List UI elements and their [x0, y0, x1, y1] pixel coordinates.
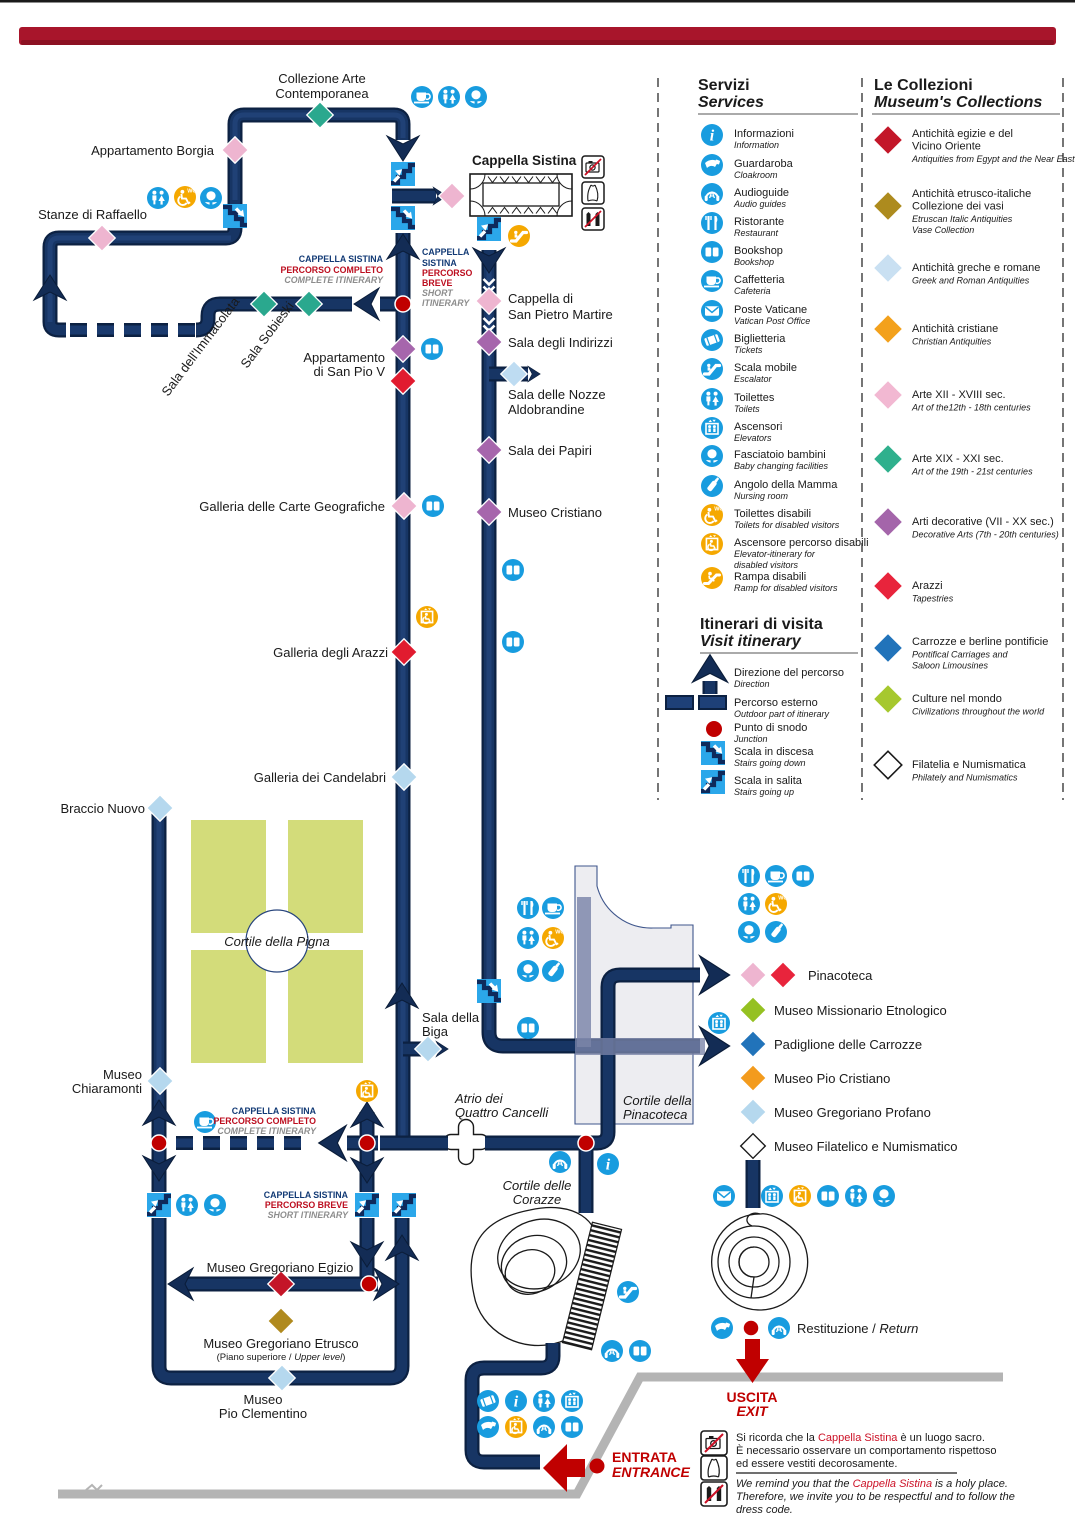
svg-text:Arazzi: Arazzi — [912, 580, 943, 592]
svg-text:Baby changing facilities: Baby changing facilities — [734, 461, 829, 471]
svg-text:SISTINA: SISTINA — [422, 258, 457, 268]
svg-text:Antichità egizie e del: Antichità egizie e del — [912, 128, 1013, 140]
svg-text:Nursing room: Nursing room — [734, 491, 789, 501]
svg-text:Antichità cristiane: Antichità cristiane — [912, 323, 998, 335]
svg-text:Restaurant: Restaurant — [734, 228, 779, 238]
svg-text:Caffetteria: Caffetteria — [734, 274, 785, 286]
svg-text:Culture nel mondo: Culture nel mondo — [912, 693, 1002, 705]
svg-text:Therefore, we invite you to be: Therefore, we invite you to be respectfu… — [736, 1491, 1015, 1503]
svg-text:Informazioni: Informazioni — [734, 128, 794, 140]
svg-text:Aldobrandine: Aldobrandine — [508, 402, 585, 417]
svg-text:Saloon Limousines: Saloon Limousines — [912, 661, 989, 671]
svg-text:Toilettes: Toilettes — [734, 392, 775, 404]
svg-text:Filatelia e Numismatica: Filatelia e Numismatica — [912, 759, 1027, 771]
svg-text:Galleria degli Arazzi: Galleria degli Arazzi — [273, 645, 388, 660]
svg-text:Fasciatoio bambini: Fasciatoio bambini — [734, 449, 826, 461]
svg-text:Museo: Museo — [103, 1067, 142, 1082]
svg-text:Cafeteria: Cafeteria — [734, 286, 771, 296]
svg-text:Antichità etrusco-italiche: Antichità etrusco-italiche — [912, 188, 1031, 200]
svg-text:Escalator: Escalator — [734, 374, 773, 384]
svg-text:Vicino Oriente: Vicino Oriente — [912, 141, 981, 153]
svg-text:Antichità greche e romane: Antichità greche e romane — [912, 262, 1040, 274]
svg-text:Decorative Arts (7th - 20th ce: Decorative Arts (7th - 20th centuries) — [912, 530, 1059, 540]
svg-text:Scala in discesa: Scala in discesa — [734, 746, 814, 758]
svg-text:Museo Cristiano: Museo Cristiano — [508, 505, 602, 520]
svg-text:SHORT ITINERARY: SHORT ITINERARY — [268, 1210, 349, 1220]
svg-text:Arte XII - XVIII sec.: Arte XII - XVIII sec. — [912, 389, 1006, 401]
svg-text:Cortile delle: Cortile delle — [503, 1178, 572, 1193]
svg-text:ed essere vestiti decorosament: ed essere vestiti decorosamente. — [736, 1458, 897, 1470]
svg-text:Outdoor part of itinerary: Outdoor part of itinerary — [734, 709, 830, 719]
svg-text:Vase Collection: Vase Collection — [912, 225, 974, 235]
svg-text:Christian Antiquities: Christian Antiquities — [912, 337, 992, 347]
svg-text:COMPLETE ITINERARY: COMPLETE ITINERARY — [284, 275, 384, 285]
svg-text:Chiaramonti: Chiaramonti — [72, 1081, 142, 1096]
svg-text:Museum's Collections: Museum's Collections — [874, 94, 1042, 111]
svg-text:PERCORSO COMPLETO: PERCORSO COMPLETO — [214, 1116, 317, 1126]
svg-text:Appartamento: Appartamento — [303, 350, 385, 365]
svg-text:Ascensori: Ascensori — [734, 421, 782, 433]
svg-text:È necessario osservare un comp: È necessario osservare un comportamento … — [736, 1444, 996, 1457]
svg-text:Stairs going up: Stairs going up — [734, 787, 794, 797]
svg-text:Stairs going down: Stairs going down — [734, 758, 806, 768]
svg-text:Scala mobile: Scala mobile — [734, 362, 797, 374]
svg-text:Etruscan Italic Antiquities: Etruscan Italic Antiquities — [912, 214, 1013, 224]
svg-text:Galleria delle Carte Geografic: Galleria delle Carte Geografiche — [199, 499, 385, 514]
svg-text:Bookshop: Bookshop — [734, 257, 774, 267]
svg-text:Cloakroom: Cloakroom — [734, 170, 778, 180]
svg-text:Elevators: Elevators — [734, 433, 772, 443]
svg-text:Toilets: Toilets — [734, 404, 760, 414]
svg-text:Poste Vaticane: Poste Vaticane — [734, 304, 807, 316]
svg-text:PERCORSO BREVE: PERCORSO BREVE — [265, 1200, 348, 1210]
svg-text:Museo Missionario Etnologico: Museo Missionario Etnologico — [774, 1003, 947, 1018]
svg-text:Percorso esterno: Percorso esterno — [734, 697, 818, 709]
svg-text:CAPPELLA SISTINA: CAPPELLA SISTINA — [264, 1190, 349, 1200]
svg-text:Arte XIX - XXI sec.: Arte XIX - XXI sec. — [912, 453, 1004, 465]
svg-text:Quattro Cancelli: Quattro Cancelli — [455, 1105, 549, 1120]
svg-text:Braccio Nuovo: Braccio Nuovo — [60, 801, 145, 816]
svg-text:Itinerari di visita: Itinerari di visita — [700, 616, 823, 633]
svg-text:Ascensore percorso disabili: Ascensore percorso disabili — [734, 537, 869, 549]
svg-text:Elevator-itinerary for: Elevator-itinerary for — [734, 549, 816, 559]
svg-text:Tapestries: Tapestries — [912, 594, 954, 604]
svg-text:Biga: Biga — [422, 1024, 449, 1039]
svg-text:Ristorante: Ristorante — [734, 216, 784, 228]
svg-text:PERCORSO COMPLETO: PERCORSO COMPLETO — [281, 265, 384, 275]
svg-text:Direction: Direction — [734, 679, 770, 689]
svg-text:Cappella Sistina: Cappella Sistina — [472, 153, 577, 168]
svg-text:Arti decorative (VII - XX sec.: Arti decorative (VII - XX sec.) — [912, 516, 1054, 528]
svg-text:Services: Services — [698, 94, 764, 111]
svg-text:Collezione Arte: Collezione Arte — [278, 71, 365, 86]
svg-text:Greek and Roman Antiquities: Greek and Roman Antiquities — [912, 276, 1030, 286]
svg-text:Toilettes disabili: Toilettes disabili — [734, 508, 811, 520]
svg-text:Antiquities from Egypt and the: Antiquities from Egypt and the Near East — [911, 154, 1075, 164]
svg-text:Audio guides: Audio guides — [733, 199, 787, 209]
svg-text:Cappella di: Cappella di — [508, 291, 573, 306]
svg-text:Sala della: Sala della — [422, 1010, 480, 1025]
svg-text:ITINERARY: ITINERARY — [422, 298, 470, 308]
svg-text:Museo Filatelico e Numismatico: Museo Filatelico e Numismatico — [774, 1139, 958, 1154]
svg-text:disabled visitors: disabled visitors — [734, 560, 799, 570]
svg-text:Restituzione / Return: Restituzione / Return — [797, 1321, 918, 1336]
svg-text:Stanze di Raffaello: Stanze di Raffaello — [38, 207, 147, 222]
svg-text:Information: Information — [734, 140, 779, 150]
svg-text:Corazze: Corazze — [513, 1192, 561, 1207]
svg-text:Museo Gregoriano Egizio: Museo Gregoriano Egizio — [207, 1260, 354, 1275]
svg-text:Scala in salita: Scala in salita — [734, 775, 803, 787]
svg-text:Visit itinerary: Visit itinerary — [700, 633, 802, 650]
svg-text:Museo Gregoriano Profano: Museo Gregoriano Profano — [774, 1105, 931, 1120]
svg-text:Pontifical Carriages and: Pontifical Carriages and — [912, 650, 1009, 660]
svg-text:Contemporanea: Contemporanea — [275, 86, 369, 101]
svg-text:Atrio dei: Atrio dei — [454, 1091, 504, 1106]
svg-text:BREVE: BREVE — [422, 278, 452, 288]
svg-text:Biglietteria: Biglietteria — [734, 333, 786, 345]
svg-text:Tickets: Tickets — [734, 345, 763, 355]
svg-text:Museo: Museo — [243, 1392, 282, 1407]
svg-text:Collezione dei vasi: Collezione dei vasi — [912, 201, 1004, 213]
svg-text:Rampa disabili: Rampa disabili — [734, 571, 806, 583]
svg-text:Punto di snodo: Punto di snodo — [734, 722, 807, 734]
svg-text:Sala delle Nozze: Sala delle Nozze — [508, 387, 606, 402]
svg-text:Pio Clementino: Pio Clementino — [219, 1406, 307, 1421]
svg-text:Audioguide: Audioguide — [734, 187, 789, 199]
svg-text:Padiglione delle Carrozze: Padiglione delle Carrozze — [774, 1037, 922, 1052]
svg-text:Bookshop: Bookshop — [734, 245, 783, 257]
svg-text:Servizi: Servizi — [698, 77, 750, 94]
svg-text:Galleria dei Candelabri: Galleria dei Candelabri — [254, 770, 386, 785]
svg-text:Direzione del percorso: Direzione del percorso — [734, 667, 844, 679]
svg-text:CAPPELLA SISTINA: CAPPELLA SISTINA — [232, 1106, 317, 1116]
svg-text:Guardaroba: Guardaroba — [734, 158, 794, 170]
svg-text:Appartamento Borgia: Appartamento Borgia — [91, 143, 215, 158]
svg-text:ENTRATA: ENTRATA — [612, 1449, 677, 1465]
svg-text:Sala dei Papiri: Sala dei Papiri — [508, 443, 592, 458]
svg-text:Le Collezioni: Le Collezioni — [874, 77, 973, 94]
svg-text:Pinacoteca: Pinacoteca — [623, 1107, 687, 1122]
svg-text:San Pietro Martire: San Pietro Martire — [508, 307, 613, 322]
svg-text:Civilizations throughout the w: Civilizations throughout the world — [912, 707, 1045, 717]
svg-text:Angolo della Mamma: Angolo della Mamma — [734, 479, 838, 491]
svg-text:PERCORSO: PERCORSO — [422, 268, 473, 278]
svg-text:Cortile della Pigna: Cortile della Pigna — [224, 934, 330, 949]
svg-text:CAPPELLA SISTINA: CAPPELLA SISTINA — [299, 254, 384, 264]
svg-text:Sala degli Indirizzi: Sala degli Indirizzi — [508, 335, 613, 350]
svg-text:CAPPELLA: CAPPELLA — [422, 247, 470, 257]
svg-text:Carrozze e berline pontificie: Carrozze e berline pontificie — [912, 636, 1048, 648]
svg-text:Art of the12th - 18th centurie: Art of the12th - 18th centuries — [911, 403, 1031, 413]
svg-text:Cortile della: Cortile della — [623, 1093, 692, 1108]
svg-text:dress code.: dress code. — [736, 1504, 793, 1516]
svg-text:Pinacoteca: Pinacoteca — [808, 968, 873, 983]
svg-text:We remind you that the Cappell: We remind you that the Cappella Sistina … — [736, 1478, 1008, 1490]
svg-text:ENTRANCE: ENTRANCE — [612, 1464, 690, 1480]
svg-text:Art of the 19th - 21st centuri: Art of the 19th - 21st centuries — [911, 467, 1033, 477]
svg-text:Philately and Numismatics: Philately and Numismatics — [912, 773, 1018, 783]
svg-text:Ramp for disabled visitors: Ramp for disabled visitors — [734, 583, 838, 593]
svg-text:Vatican Post Office: Vatican Post Office — [734, 316, 810, 326]
svg-text:COMPLETE ITINERARY: COMPLETE ITINERARY — [217, 1126, 317, 1136]
svg-text:Toilets for disabled visitors: Toilets for disabled visitors — [734, 520, 840, 530]
svg-text:Museo Gregoriano Etrusco: Museo Gregoriano Etrusco — [203, 1336, 358, 1351]
svg-text:EXIT: EXIT — [736, 1403, 769, 1419]
svg-text:di San Pio V: di San Pio V — [313, 364, 385, 379]
svg-text:Museo Pio Cristiano: Museo Pio Cristiano — [774, 1071, 890, 1086]
svg-text:Si ricorda che la Cappella Sis: Si ricorda che la Cappella Sistina è un … — [736, 1432, 985, 1444]
svg-text:(Piano superiore / Upper level: (Piano superiore / Upper level) — [217, 1352, 346, 1363]
svg-text:SHORT: SHORT — [422, 288, 453, 298]
svg-text:Junction: Junction — [733, 734, 768, 744]
